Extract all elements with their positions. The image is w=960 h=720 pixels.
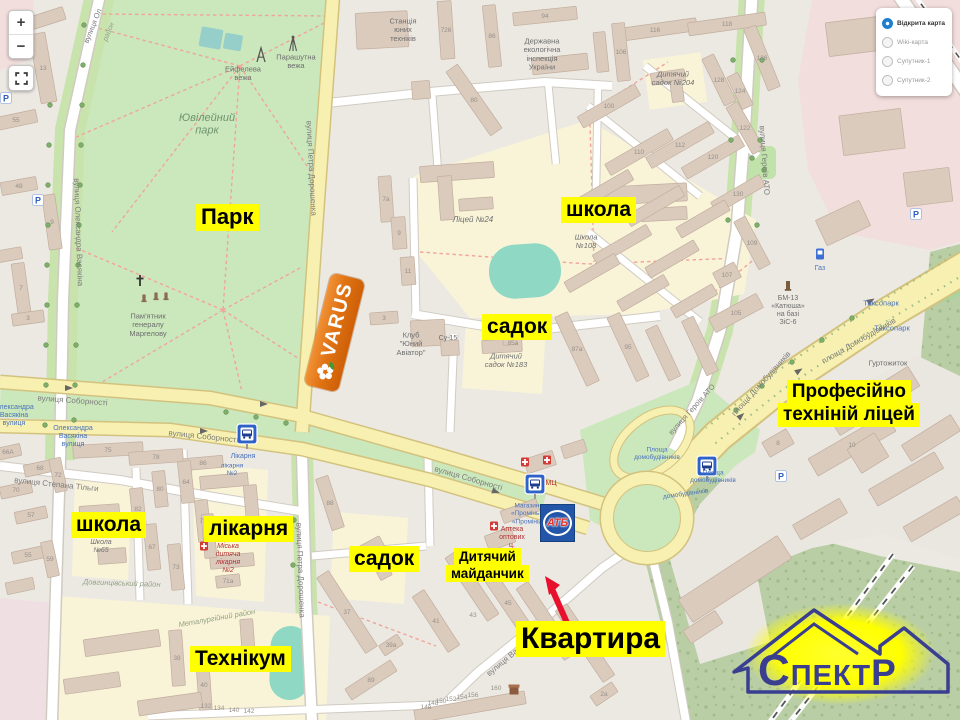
layer-option-label: Супутник-1	[897, 58, 931, 65]
house-number: 67	[148, 544, 156, 551]
svg-text:P: P	[3, 93, 9, 103]
annotation-school-1: школа	[561, 197, 636, 223]
atb-store-marker: АТБ	[540, 504, 575, 542]
house-number: 37	[343, 609, 351, 616]
house-number: 71а	[223, 578, 234, 585]
house-number: 39а	[386, 642, 397, 649]
building	[903, 167, 953, 206]
house-number: 73	[172, 564, 180, 571]
house-number: 68	[36, 465, 44, 472]
house-number: 11	[405, 268, 412, 275]
house-number: 107	[722, 272, 733, 279]
annotation-litsey-line: Професійно	[787, 380, 911, 403]
map-label: Таксопарк	[863, 299, 899, 308]
tree-icon	[80, 103, 85, 108]
house-number: 110	[634, 149, 645, 156]
house-number: 78	[152, 454, 160, 461]
house-number: 59	[46, 556, 54, 563]
tree-icon	[731, 58, 736, 63]
map-label: Газ	[815, 265, 825, 272]
house-number: 140	[229, 707, 240, 714]
layer-radio-icon	[882, 75, 893, 86]
map-label: МЦ	[545, 480, 557, 487]
annotation-tekhnikum: Технікум	[190, 646, 291, 672]
house-number: 85а	[508, 340, 519, 347]
tree-icon	[729, 138, 734, 143]
house-number: 72	[54, 472, 62, 479]
house-number: 152	[446, 696, 457, 703]
pharmacy-icon	[521, 458, 529, 467]
building	[437, 176, 454, 221]
house-number: 86	[488, 33, 496, 40]
house-number: 105	[731, 310, 742, 317]
parking-icon: P	[33, 195, 44, 206]
fullscreen-icon	[15, 72, 28, 85]
annotation-playground: Дитячиймайданчик	[446, 548, 529, 582]
house-number: 109	[747, 240, 758, 247]
tree-icon	[790, 360, 795, 365]
tree-icon	[82, 23, 87, 28]
house-number: 120	[708, 154, 719, 161]
house-number: 116	[650, 27, 661, 34]
pharmacy-icon	[200, 542, 208, 551]
tree-icon	[755, 223, 760, 228]
house-number: 124	[735, 88, 746, 95]
house-number: 2а	[600, 691, 608, 698]
annotation-playground-line: Дитячий	[454, 548, 521, 565]
layer-option-label: Відкрита карта	[897, 20, 945, 27]
layer-option-4[interactable]: Супутник-2	[881, 71, 947, 90]
map-label: Лікарня	[231, 452, 256, 460]
parking-icon: P	[776, 471, 787, 482]
tree-icon	[726, 218, 731, 223]
annotation-sadok-1-line: садок	[482, 314, 552, 340]
house-number: 126	[757, 55, 768, 62]
tree-icon	[72, 418, 77, 423]
annotation-tekhnikum-line: Технікум	[190, 646, 291, 672]
tree-icon	[46, 183, 51, 188]
house-number: 48	[15, 183, 23, 190]
house-number: 154	[457, 694, 468, 701]
annotation-kvartyra-line: Квартира	[516, 621, 665, 657]
house-number: 112	[675, 142, 686, 149]
svg-text:P: P	[35, 195, 41, 205]
map-label: Дитячийсадок №204	[652, 70, 695, 88]
house-number: 128	[714, 77, 725, 84]
pond-2	[223, 33, 244, 52]
map-label: Школа№108	[575, 233, 598, 251]
map-label: Пам'ятникгенералуМаргелову	[129, 312, 167, 338]
house-number: 122	[740, 125, 751, 132]
house-number: 86	[199, 460, 207, 467]
svg-text:P: P	[778, 471, 784, 481]
house-number: 95	[624, 344, 632, 351]
layer-option-label: Wiki-карта	[897, 39, 928, 46]
house-number: 55	[12, 117, 20, 124]
house-number: 7	[19, 285, 23, 292]
tree-icon	[43, 423, 48, 428]
house-number: 3	[382, 315, 386, 322]
map-label: Школа№65	[90, 539, 111, 554]
house-number: 132	[201, 703, 212, 710]
house-number: 3	[26, 315, 30, 322]
pharmacy-icon	[490, 522, 498, 531]
layer-radio-icon	[882, 56, 893, 67]
house-number: 87а	[572, 346, 583, 353]
shop-icon	[509, 685, 520, 695]
house-number: 14в	[421, 704, 432, 711]
house-number: 55	[24, 552, 32, 559]
layer-radio-icon	[882, 18, 893, 29]
map-label: Магазин«Промінь»	[511, 503, 543, 517]
tree-icon	[44, 343, 49, 348]
tree-icon	[75, 303, 80, 308]
map-label: Ліцей №24	[452, 215, 494, 224]
annotation-sadok-2: садок	[349, 546, 419, 572]
house-number: 94	[541, 13, 549, 20]
tree-icon	[750, 156, 755, 161]
house-number: 43	[469, 612, 477, 619]
house-number: 7а	[382, 196, 390, 203]
building	[441, 340, 460, 356]
zoom-in-button[interactable]: +	[9, 11, 33, 34]
house-number: 8	[776, 440, 780, 447]
house-number: 57	[27, 512, 35, 519]
annotation-litsey: Професійнотехніній ліцей	[778, 380, 920, 427]
tree-icon	[45, 303, 50, 308]
map-label: Су-15	[439, 335, 458, 342]
house-number: 9	[397, 230, 401, 237]
parking-icon: P	[911, 209, 922, 220]
house-number: 134	[214, 705, 225, 712]
annotation-playground-line: майданчик	[446, 565, 529, 582]
atb-wordmark: АТБ	[547, 517, 568, 529]
tree-icon	[284, 421, 289, 426]
building	[459, 197, 494, 211]
annotation-kvartyra: Квартира	[516, 621, 665, 657]
tree-icon	[79, 143, 84, 148]
house-number: 160	[491, 685, 502, 692]
house-number: 118	[722, 21, 733, 28]
tree-icon	[81, 63, 86, 68]
house-number: 88	[326, 500, 334, 507]
tree-icon	[224, 410, 229, 415]
annotation-sadok-1: садок	[482, 314, 552, 340]
layer-option-3[interactable]: Супутник-1	[881, 52, 947, 71]
spektr-logo: СПЕКТР	[718, 588, 960, 720]
pond-1	[198, 26, 223, 50]
house-number: 41	[432, 618, 440, 625]
tree-icon	[291, 563, 296, 568]
varus-flower-icon	[311, 358, 338, 385]
house-number: 70	[12, 487, 20, 494]
house-number: 80	[156, 486, 164, 493]
map-label: Гуртожиток	[869, 359, 908, 368]
house-number: 726	[441, 27, 452, 34]
layer-option-1[interactable]: Відкрита карта	[881, 14, 947, 33]
fullscreen-button[interactable]	[8, 65, 34, 91]
zoom-control: + −	[8, 10, 34, 91]
building	[411, 80, 430, 99]
house-number: 156	[468, 692, 479, 699]
house-number: 13	[39, 65, 47, 72]
house-number: 10	[848, 442, 856, 449]
layer-option-2[interactable]: Wiki-карта	[881, 33, 947, 52]
annotation-sadok-2-line: садок	[349, 546, 419, 572]
house-number: 38	[173, 655, 181, 662]
house-number: 66А	[2, 449, 14, 456]
tree-icon	[73, 383, 78, 388]
tree-icon	[74, 343, 79, 348]
tree-icon	[45, 263, 50, 268]
annotation-school-2: школа	[71, 512, 146, 538]
tree-icon	[48, 103, 53, 108]
building	[839, 108, 905, 155]
house-number: 130	[733, 191, 744, 198]
house-number: 40	[200, 682, 208, 689]
layers-panel: Відкрита картаWiki-картаСупутник-1Супутн…	[876, 8, 952, 96]
layer-radio-icon	[882, 37, 893, 48]
house-number: 80	[470, 97, 478, 104]
annotation-park: Парк	[196, 204, 259, 231]
annotation-likarnya-line: лікарня	[204, 516, 293, 542]
parking-icon: P	[1, 93, 12, 104]
annotation-school-2-line: школа	[71, 512, 146, 538]
house-number: 75	[104, 447, 112, 454]
house-number: 89	[367, 677, 375, 684]
pharmacy-icon	[543, 456, 551, 465]
house-number: 106	[616, 49, 627, 56]
map-canvas[interactable]: PPPP 13554897372686948011611810612612812…	[0, 0, 960, 720]
svg-text:P: P	[913, 209, 919, 219]
annotation-park-line: Парк	[196, 204, 259, 231]
annotation-school-1-line: школа	[561, 197, 636, 223]
map-label: Дитячийсадок №183	[485, 352, 528, 370]
house-number: 45	[504, 600, 512, 607]
annotation-likarnya: лікарня	[204, 516, 293, 542]
tree-icon	[47, 143, 52, 148]
tree-icon	[820, 338, 825, 343]
house-number: 100	[604, 103, 615, 110]
fuel-icon	[816, 249, 824, 260]
tree-icon	[254, 415, 259, 420]
layer-option-label: Супутник-2	[897, 77, 931, 84]
house-number: 64	[182, 479, 190, 486]
annotation-litsey-line: техніній ліцей	[778, 403, 920, 426]
zoom-out-button[interactable]: −	[9, 34, 33, 58]
tree-icon	[850, 316, 855, 321]
house-number: 9	[50, 219, 54, 226]
tree-icon	[44, 383, 49, 388]
house-number: 142	[244, 708, 255, 715]
